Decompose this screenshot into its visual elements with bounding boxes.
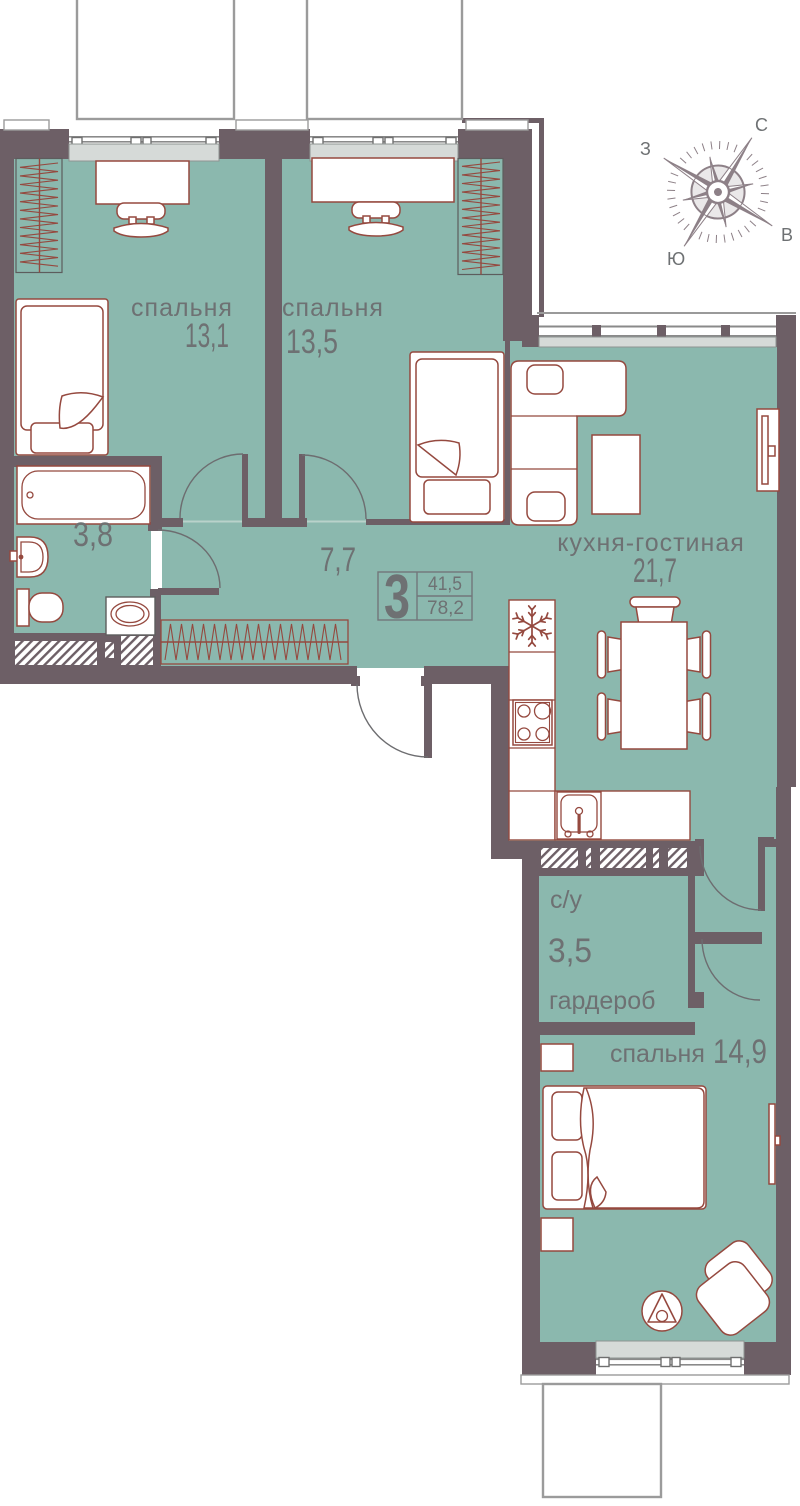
svg-text:78,2: 78,2 — [427, 598, 464, 619]
svg-text:13,5: 13,5 — [286, 323, 338, 361]
svg-text:41,5: 41,5 — [428, 574, 462, 595]
svg-text:гардероб: гардероб — [549, 987, 655, 1015]
svg-text:с/у: с/у — [550, 886, 582, 914]
svg-text:14,9: 14,9 — [713, 1033, 767, 1071]
svg-text:С: С — [755, 115, 768, 135]
svg-text:спальня: спальня — [610, 1040, 705, 1068]
svg-text:Ю: Ю — [667, 249, 685, 269]
svg-text:З: З — [640, 139, 651, 159]
svg-text:3,8: 3,8 — [73, 516, 113, 554]
svg-text:спальня: спальня — [282, 294, 384, 322]
svg-text:7,7: 7,7 — [320, 541, 356, 579]
svg-text:3,5: 3,5 — [548, 932, 592, 970]
svg-text:В: В — [781, 225, 793, 245]
svg-text:13,1: 13,1 — [185, 317, 229, 355]
svg-text:3: 3 — [384, 563, 410, 632]
svg-text:21,7: 21,7 — [633, 552, 677, 590]
